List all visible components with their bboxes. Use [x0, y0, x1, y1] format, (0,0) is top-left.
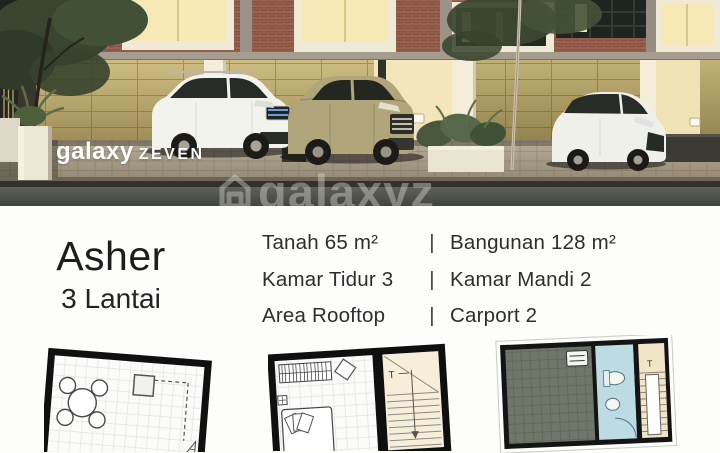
spec-carport: Carport 2	[450, 304, 616, 328]
watermark-text: galaxyz	[258, 168, 435, 206]
spec-row-land-building: Tanah 65 m² | Bangunan 128 m²	[262, 229, 616, 257]
spec-separator: |	[424, 304, 440, 328]
stair-label: T	[647, 359, 653, 369]
spec-bedrooms: Kamar Tidur 3	[262, 268, 414, 292]
spec-building: Bangunan 128 m²	[450, 231, 616, 255]
spec-row-rooftop-carport: Area Rooftop | Carport 2	[262, 302, 616, 330]
floorplan-1-thumbnail	[44, 342, 220, 452]
brand-name: galaxy	[56, 138, 134, 166]
page-title: Asher	[36, 234, 186, 278]
stair-label: T	[388, 370, 395, 381]
page-subtitle: 3 Lantai	[36, 283, 186, 315]
floorplan-2-thumbnail: T	[268, 339, 454, 451]
column-icon	[133, 375, 155, 397]
title-block: Asher 3 Lantai	[36, 234, 186, 315]
staircase-icon: T	[638, 343, 668, 438]
bed-icon	[282, 407, 335, 451]
spec-separator: |	[424, 231, 440, 255]
house-icon	[216, 172, 254, 206]
bathroom-area	[595, 344, 637, 440]
watermark: galaxyz	[216, 168, 435, 206]
floorplan-3-thumbnail: T	[494, 335, 678, 453]
fixture-icon	[278, 395, 288, 405]
rooftop-area	[505, 346, 595, 444]
spec-separator: |	[424, 268, 440, 292]
wardrobe-icon	[279, 362, 332, 383]
spec-bathrooms: Kamar Mandi 2	[450, 268, 616, 292]
flyer-page: { "photo": { "brand": { "name": "galaxy"…	[0, 0, 720, 420]
hero-photo-townhouse: galaxy ZEVEN galaxyz	[0, 0, 720, 206]
spec-rooftop: Area Rooftop	[262, 304, 414, 328]
spec-list: Tanah 65 m² | Bangunan 128 m² Kamar Tidu…	[262, 229, 616, 339]
brand-logo: galaxy ZEVEN	[56, 138, 205, 166]
brand-suffix: ZEVEN	[139, 146, 205, 164]
spec-row-bed-bath: Kamar Tidur 3 | Kamar Mandi 2	[262, 266, 616, 294]
spec-land: Tanah 65 m²	[262, 231, 414, 255]
